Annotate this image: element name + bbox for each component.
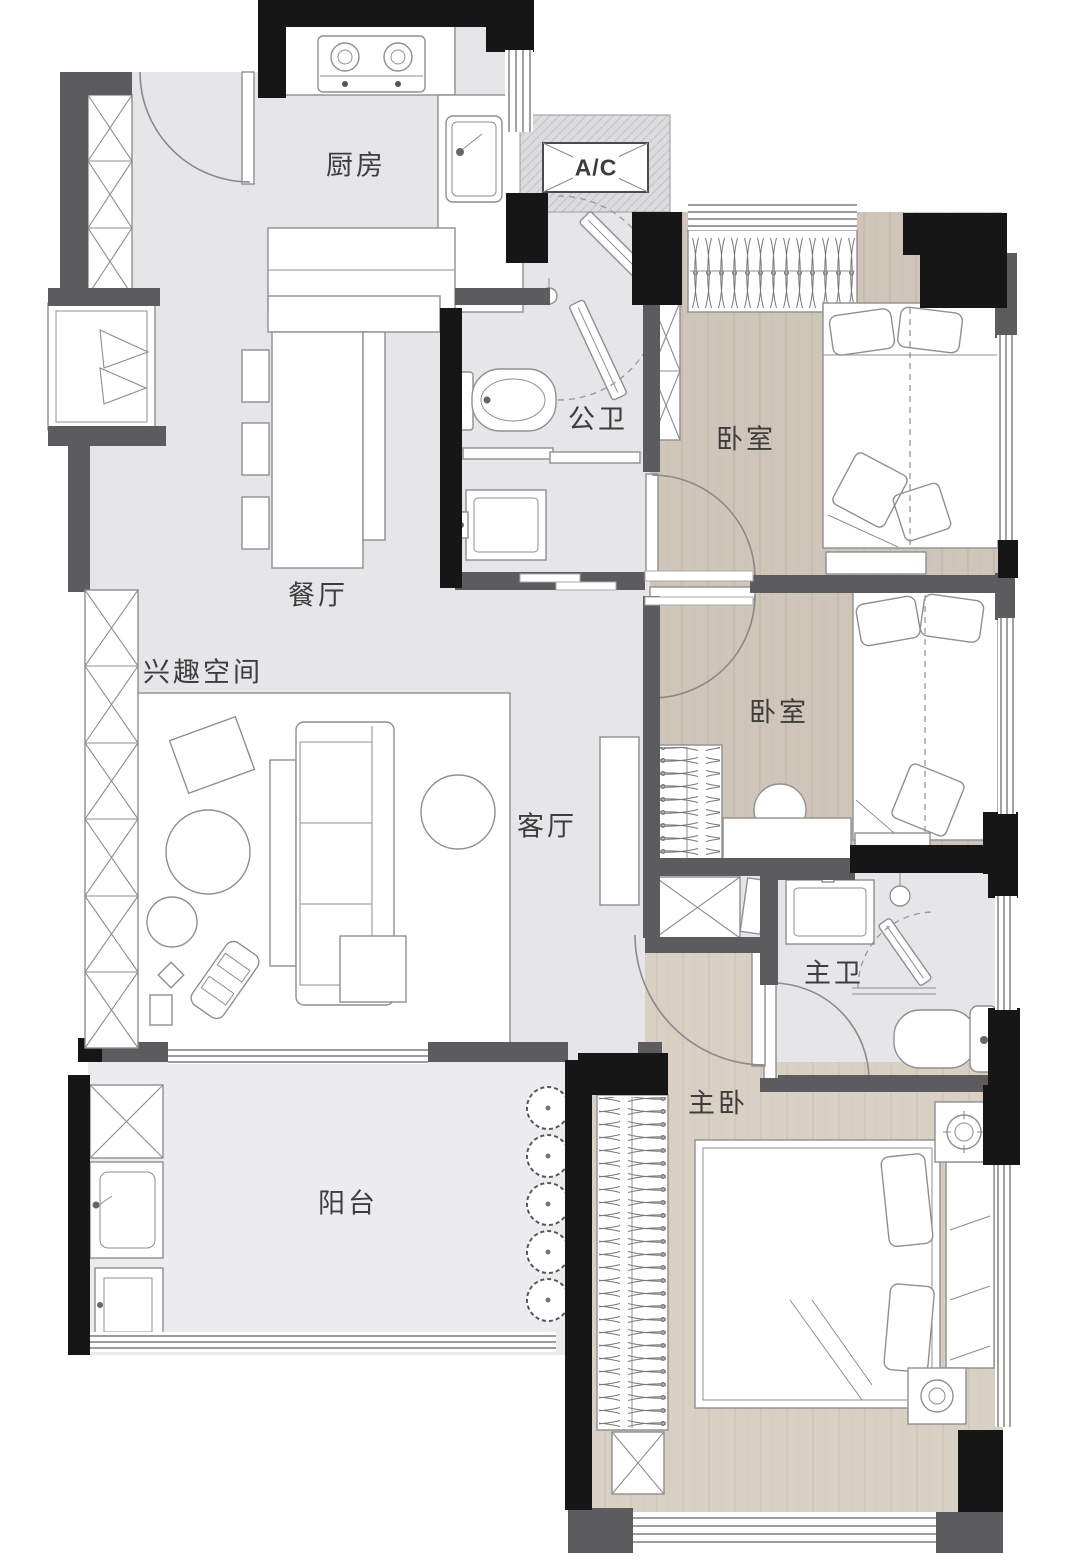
toilet-icon bbox=[894, 1006, 998, 1072]
toilet-icon bbox=[456, 369, 556, 431]
room-label-master-bathroom: 主卫 bbox=[804, 952, 864, 991]
room-label-ac: A/C bbox=[575, 155, 618, 182]
hobby-space-furniture bbox=[135, 693, 510, 1052]
floor-window-column bbox=[85, 590, 138, 1048]
nightstand-lamp bbox=[908, 1368, 966, 1424]
wardrobe-hangers bbox=[652, 745, 722, 867]
window bbox=[995, 1165, 1017, 1427]
tv-console bbox=[600, 737, 639, 905]
entry-door-leaf bbox=[242, 72, 254, 184]
room-label-living: 客厅 bbox=[517, 805, 577, 844]
double-bed bbox=[823, 303, 998, 548]
room-label-bedroom-1: 卧室 bbox=[716, 418, 776, 457]
duct-shaft bbox=[655, 877, 740, 938]
dining-chair bbox=[242, 423, 269, 475]
plant-pots bbox=[527, 1087, 569, 1321]
dining-chair bbox=[242, 350, 269, 402]
wardrobe-hangers bbox=[597, 1095, 668, 1430]
desk bbox=[723, 818, 851, 864]
balcony-sliding-door bbox=[168, 1046, 428, 1064]
room-label-master-bedroom: 主卧 bbox=[688, 1082, 748, 1121]
dining-table bbox=[272, 332, 363, 568]
door-leaf bbox=[764, 983, 776, 1080]
washing-machine-icon bbox=[90, 1085, 163, 1158]
shoe-cabinet bbox=[88, 95, 132, 295]
toy-block bbox=[150, 995, 172, 1025]
room-label-bedroom-2: 卧室 bbox=[749, 691, 809, 730]
bathroom-sink-icon bbox=[455, 490, 546, 560]
wardrobe-hangers bbox=[688, 230, 857, 312]
round-table bbox=[166, 810, 250, 894]
window bbox=[688, 200, 857, 230]
bay-window-plants bbox=[48, 303, 155, 430]
window bbox=[997, 335, 1017, 540]
laundry-sink-icon bbox=[90, 1162, 163, 1258]
round-side-table bbox=[421, 775, 495, 849]
bed-bench bbox=[826, 552, 926, 574]
side-table bbox=[340, 936, 406, 1002]
single-bed bbox=[853, 588, 998, 840]
balcony-cabinet bbox=[95, 1268, 163, 1342]
cabinet-hatch bbox=[612, 1432, 664, 1494]
floor-plan-drawing bbox=[0, 0, 1080, 1565]
room-label-guest-bathroom: 公卫 bbox=[568, 398, 628, 437]
balcony-window bbox=[90, 1332, 556, 1352]
sideboard bbox=[268, 296, 440, 332]
window bbox=[505, 50, 533, 132]
kitchen-sink-icon bbox=[446, 116, 502, 202]
floor-plan: 厨房 A/C 公卫 卧室 卧室 餐厅 兴趣空间 客厅 主卫 主卧 阳台 bbox=[0, 0, 1080, 1565]
room-label-kitchen: 厨房 bbox=[326, 144, 386, 183]
console-table bbox=[270, 760, 296, 966]
window bbox=[633, 1512, 936, 1553]
stove-icon bbox=[318, 36, 425, 92]
dining-bench bbox=[363, 332, 385, 540]
corridor-floor bbox=[645, 950, 765, 1070]
window bbox=[998, 618, 1016, 814]
room-label-hobby-space: 兴趣空间 bbox=[143, 651, 263, 690]
room-label-balcony: 阳台 bbox=[318, 1182, 378, 1221]
room-label-dining: 餐厅 bbox=[288, 574, 348, 613]
master-bed bbox=[695, 1140, 940, 1408]
dining-chair bbox=[242, 497, 269, 549]
bathroom-sink-icon bbox=[786, 872, 874, 944]
bedside-chaise bbox=[946, 1162, 994, 1368]
window bbox=[995, 896, 1017, 1010]
door-leaf bbox=[646, 474, 658, 576]
round-stool bbox=[147, 897, 197, 947]
